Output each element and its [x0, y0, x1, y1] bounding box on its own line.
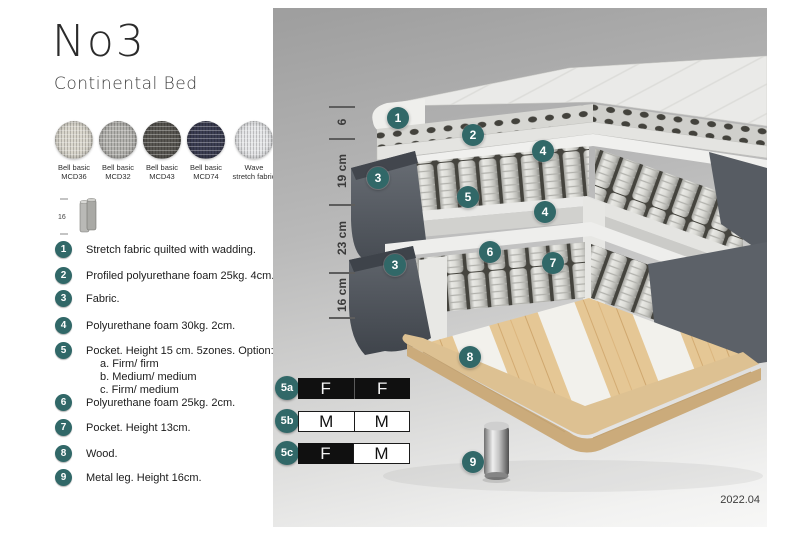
dimension-label-leg: 16 cm [335, 278, 349, 312]
fabric-swatch-circle [235, 121, 273, 159]
firmness-row-5c: F M [298, 443, 410, 464]
legend-text: Pocket. Height 13cm. [86, 422, 191, 434]
firmness-cell: F [298, 443, 353, 464]
version-stamp: 2022.04 [668, 494, 760, 506]
firmness-cell: F [298, 378, 354, 399]
firmness-row-label-5a: 5a [275, 376, 299, 400]
fabric-swatch-label: Wavestretch fabric [233, 163, 276, 181]
callout-badge-3a: 3 [367, 167, 389, 189]
ruler-tick [329, 106, 355, 108]
legend-item-4: 4 Polyurethane foam 30kg. 2cm. [55, 317, 235, 334]
page-subtitle: Continental Bed [54, 74, 198, 94]
firmness-cell: M [353, 443, 410, 464]
legend-item-7: 7 Pocket. Height 13cm. [55, 419, 191, 436]
legend-number-badge: 7 [55, 419, 72, 436]
firmness-cell: F [354, 378, 411, 399]
legend-text: Fabric. [86, 293, 120, 305]
callout-badge-2: 2 [462, 124, 484, 146]
firmness-row-5b: M M [298, 411, 410, 432]
leg-cylinders [80, 198, 96, 232]
legend-sub-option-a: a. Firm/ firm [100, 358, 159, 370]
ruler-tick [329, 138, 355, 140]
ruler-tick [329, 204, 355, 206]
legend-item-1: 1 Stretch fabric quilted with wadding. [55, 241, 256, 258]
callout-badge-5: 5 [457, 186, 479, 208]
legend-number-badge: 4 [55, 317, 72, 334]
callout-badge-1: 1 [387, 107, 409, 129]
callout-badge-9: 9 [462, 451, 484, 473]
dimension-label-base: 23 cm [335, 221, 349, 255]
legend-item-6: 6 Polyurethane foam 25kg. 2cm. [55, 394, 235, 411]
callout-badge-4b: 4 [534, 201, 556, 223]
legend-item-9: 9 Metal leg. Height 16cm. [55, 469, 202, 486]
fabric-swatch: Bell basicMCD43 [140, 121, 184, 181]
legend-item-8: 8 Wood. [55, 445, 118, 462]
legend-text: Profiled polyurethane foam 25kg. 4cm. [86, 270, 274, 282]
fabric-swatch: Bell basicMCD74 [184, 121, 228, 181]
legend-number-badge: 9 [55, 469, 72, 486]
firmness-cell: M [354, 411, 411, 432]
fabric-swatch-circle [187, 121, 225, 159]
fabric-swatch-label: Bell basicMCD74 [190, 163, 222, 181]
ruler-tick [329, 272, 355, 274]
firmness-row-5a: F F [298, 378, 410, 399]
legend-text: Stretch fabric quilted with wadding. [86, 244, 256, 256]
callout-badge-8: 8 [459, 346, 481, 368]
dimension-label-middle: 19 cm [335, 154, 349, 188]
leg-height-label: 16 [58, 214, 66, 221]
legend-text: Polyurethane foam 30kg. 2cm. [86, 320, 235, 332]
firmness-row-label-5b: 5b [275, 409, 299, 433]
legend-sub-option-b: b. Medium/ medium [100, 371, 197, 383]
callout-badge-7: 7 [542, 252, 564, 274]
page-title: No3 [52, 20, 146, 64]
legend-number-badge: 1 [55, 241, 72, 258]
fabric-swatch: Bell basicMCD36 [52, 121, 96, 181]
legend-item-5: 5 Pocket. Height 15 cm. 5zones. Option: [55, 342, 274, 359]
firmness-cell: M [298, 411, 354, 432]
fabric-swatch-circle [55, 121, 93, 159]
callout-badge-3b: 3 [384, 254, 406, 276]
callout-badge-6: 6 [479, 241, 501, 263]
legend-text: Wood. [86, 448, 118, 460]
leg-height-icon: 16 [52, 190, 104, 242]
legend-text: Pocket. Height 15 cm. 5zones. Option: [86, 345, 274, 357]
legend-number-badge: 2 [55, 267, 72, 284]
legend-item-2: 2 Profiled polyurethane foam 25kg. 4cm. [55, 267, 274, 284]
legend-text: Polyurethane foam 25kg. 2cm. [86, 397, 235, 409]
fabric-swatch-circle [143, 121, 181, 159]
fabric-swatch: Bell basicMCD32 [96, 121, 140, 181]
legend-number-badge: 3 [55, 290, 72, 307]
fabric-swatch-row: Bell basicMCD36 Bell basicMCD32 Bell bas… [52, 121, 280, 181]
fabric-swatch-label: Bell basicMCD32 [102, 163, 134, 181]
callout-badge-4a: 4 [532, 140, 554, 162]
legend-item-3: 3 Fabric. [55, 290, 120, 307]
firmness-row-label-5c: 5c [275, 441, 299, 465]
legend-number-badge: 8 [55, 445, 72, 462]
fabric-swatch-circle [99, 121, 137, 159]
legend-number-badge: 6 [55, 394, 72, 411]
legend-number-badge: 5 [55, 342, 72, 359]
ruler-tick [329, 317, 355, 319]
dimension-label-topper: 6 [335, 119, 349, 126]
legend-text: Metal leg. Height 16cm. [86, 472, 202, 484]
fabric-swatch-label: Bell basicMCD36 [58, 163, 90, 181]
fabric-swatch-label: Bell basicMCD43 [146, 163, 178, 181]
